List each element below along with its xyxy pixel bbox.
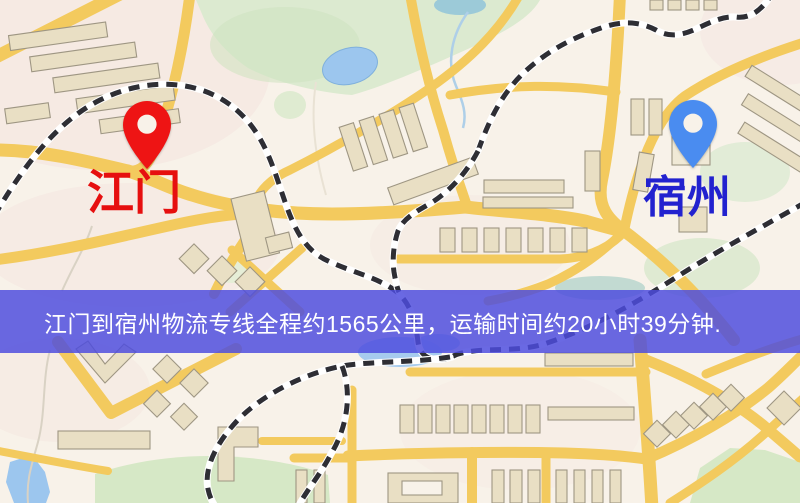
destination-pin-icon[interactable] <box>669 100 717 168</box>
route-info-banner: 江门到宿州物流专线全程约1565公里，运输时间约20小时39分钟. <box>0 290 800 353</box>
origin-city-label: 江门 <box>87 169 181 216</box>
route-info-text: 江门到宿州物流专线全程约1565公里，运输时间约20小时39分钟. <box>0 305 721 339</box>
map-canvas <box>0 0 800 503</box>
origin-pin-icon[interactable] <box>123 101 171 169</box>
destination-city-label: 宿州 <box>643 176 731 220</box>
map-image[interactable]: 江门 宿州 江门到宿州物流专线全程约1565公里，运输时间约20小时39分钟. <box>0 0 800 503</box>
